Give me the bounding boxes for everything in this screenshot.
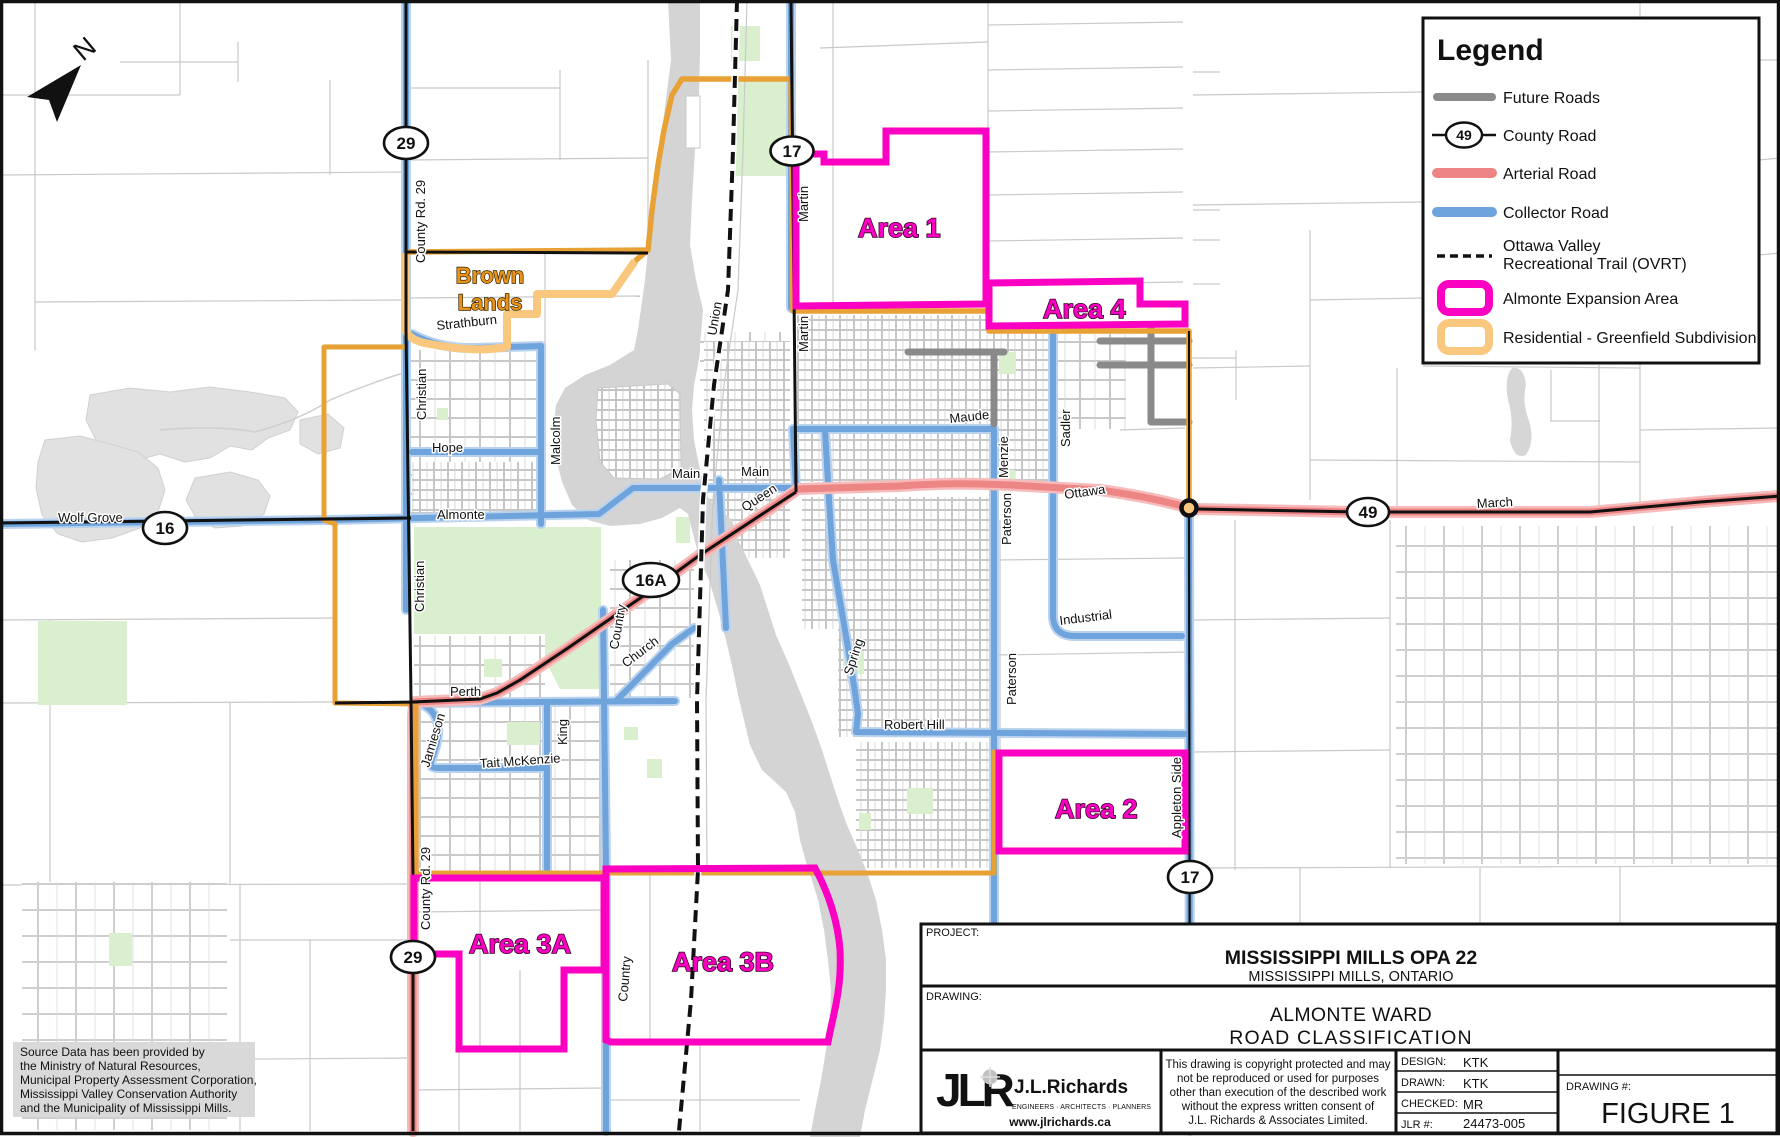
svg-text:24473-005: 24473-005 [1463,1116,1525,1131]
svg-text:Wolf Grove: Wolf Grove [58,510,123,525]
svg-text:King: King [555,719,570,745]
svg-text:the Ministry of Natural Resour: the Ministry of Natural Resources, [20,1059,201,1073]
svg-text:Paterson: Paterson [1004,653,1019,705]
svg-text:J.L. Richards & Associates Lim: J.L. Richards & Associates Limited. [1188,1115,1368,1127]
svg-text:17: 17 [783,142,802,161]
svg-text:Legend: Legend [1437,34,1544,67]
svg-text:Christian: Christian [412,561,427,612]
svg-text:Paterson: Paterson [999,493,1014,545]
svg-text:J.L.Richards: J.L.Richards [1014,1077,1128,1098]
svg-text:MISSISSIPPI MILLS OPA 22: MISSISSIPPI MILLS OPA 22 [1225,947,1478,969]
svg-text:Lands: Lands [458,290,523,315]
svg-text:Collector Road: Collector Road [1503,205,1609,222]
svg-text:MISSISSIPPI MILLS, ONTARIO: MISSISSIPPI MILLS, ONTARIO [1248,969,1453,985]
svg-text:Source Data has been provided: Source Data has been provided by [20,1045,205,1059]
svg-text:Main: Main [741,464,769,479]
svg-text:County Rd. 29: County Rd. 29 [418,847,433,930]
svg-text:Area 4: Area 4 [1043,294,1126,324]
svg-text:ROAD CLASSIFICATION: ROAD CLASSIFICATION [1229,1027,1472,1049]
svg-text:www.jlrichards.ca: www.jlrichards.ca [1008,1115,1111,1129]
svg-text:March: March [1476,494,1513,511]
svg-text:This drawing is copyright prot: This drawing is copyright protected and … [1166,1059,1391,1071]
svg-text:ENGINEERS · ARCHITECTS · PLANN: ENGINEERS · ARCHITECTS · PLANNERS [1012,1104,1151,1111]
svg-text:JLR: JLR [936,1064,1015,1116]
svg-text:Area 3A: Area 3A [469,929,571,959]
svg-text:DRAWING:: DRAWING: [926,991,982,1003]
svg-text:Martin: Martin [796,316,811,352]
svg-text:Menzie: Menzie [996,436,1011,478]
svg-text:Almonte Expansion Area: Almonte Expansion Area [1503,291,1678,308]
svg-text:KTK: KTK [1463,1055,1489,1070]
svg-text:Municipal Property Assessment: Municipal Property Assessment Corporatio… [20,1073,257,1087]
svg-text:ALMONTE WARD: ALMONTE WARD [1270,1004,1432,1026]
svg-text:KTK: KTK [1463,1076,1489,1091]
svg-text:Ottawa Valley: Ottawa Valley [1503,238,1601,255]
svg-text:Hope: Hope [432,440,463,455]
svg-text:Malcolm: Malcolm [548,417,563,465]
svg-text:County Road: County Road [1503,128,1596,145]
svg-text:PROJECT:: PROJECT: [926,927,979,939]
svg-text:and the Municipality of Missis: and the Municipality of Mississippi Mill… [20,1101,231,1115]
svg-text:Martin: Martin [796,186,811,222]
svg-text:Recreational Trail (OVRT): Recreational Trail (OVRT) [1503,256,1687,273]
svg-text:Mississippi Valley Conservatio: Mississippi Valley Conservation Authorit… [20,1087,237,1101]
svg-text:DRAWN:: DRAWN: [1401,1077,1445,1089]
svg-text:29: 29 [397,134,416,153]
svg-text:Area 2: Area 2 [1055,794,1138,824]
svg-text:not be reproduced or used for: not be reproduced or used for purposes [1177,1073,1379,1085]
svg-text:DESIGN:: DESIGN: [1401,1056,1446,1068]
svg-text:Brown: Brown [456,263,524,288]
svg-text:49: 49 [1359,503,1378,522]
svg-text:Arterial Road: Arterial Road [1503,166,1596,183]
svg-text:CHECKED:: CHECKED: [1401,1098,1458,1110]
svg-text:Christian: Christian [414,369,429,420]
svg-text:other than execution of the de: other than execution of the described wo… [1170,1087,1387,1099]
svg-text:Future Roads: Future Roads [1503,90,1600,107]
svg-text:Main: Main [672,466,700,481]
svg-text:DRAWING #:: DRAWING #: [1566,1081,1631,1093]
svg-text:JLR #:: JLR #: [1401,1119,1433,1131]
svg-text:Almonte: Almonte [437,507,485,522]
svg-text:Area 1: Area 1 [858,213,941,243]
svg-text:Sadler: Sadler [1058,409,1073,447]
svg-text:without the express written co: without the express written consent of [1181,1101,1375,1113]
svg-text:MR: MR [1463,1097,1483,1112]
svg-text:17: 17 [1181,868,1200,887]
svg-text:Area 3B: Area 3B [672,947,774,977]
svg-text:County Rd. 29: County Rd. 29 [413,180,428,263]
svg-text:49: 49 [1456,127,1472,143]
svg-text:FIGURE 1: FIGURE 1 [1601,1098,1735,1130]
svg-text:16: 16 [156,519,175,538]
svg-text:29: 29 [404,948,423,967]
svg-text:Residential - Greenfield Subdi: Residential - Greenfield Subdivision [1503,330,1756,347]
svg-text:Appleton Side: Appleton Side [1169,757,1184,838]
svg-text:16A: 16A [635,571,666,590]
svg-text:Perth: Perth [450,684,481,699]
svg-text:Robert Hill: Robert Hill [884,717,945,732]
